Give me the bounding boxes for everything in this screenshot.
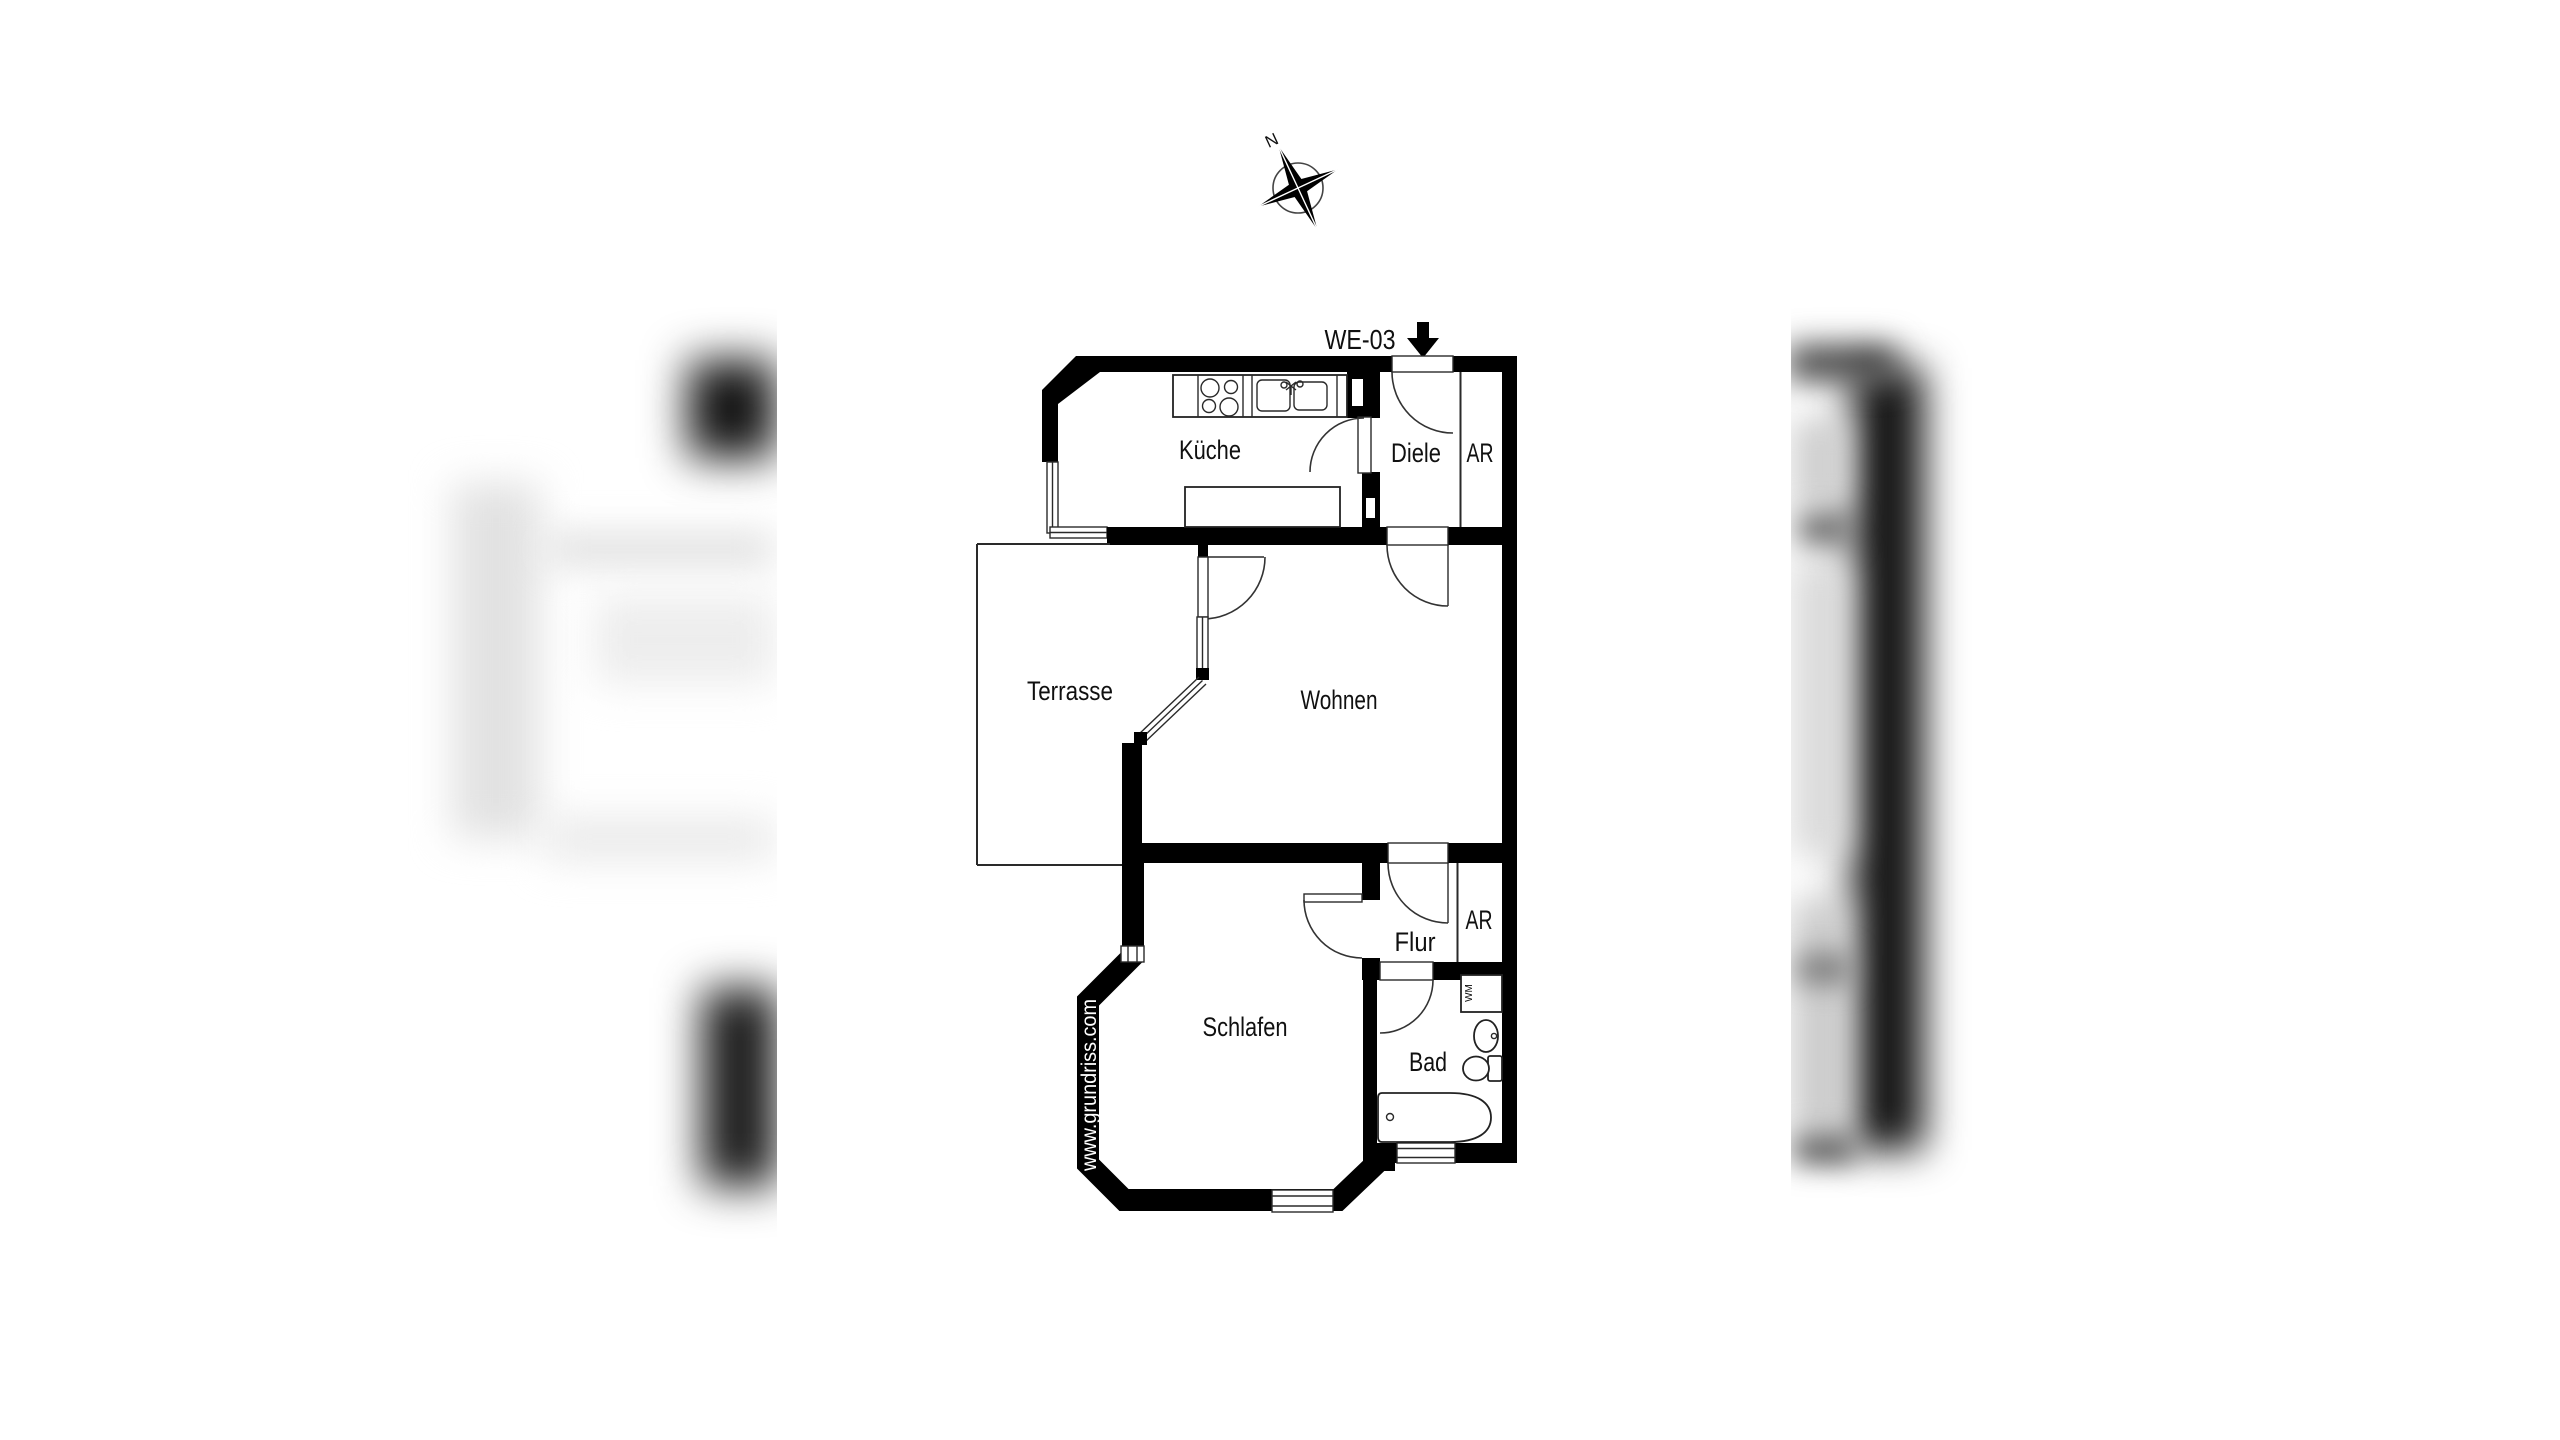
wall-kitchen-bottom bbox=[1107, 527, 1387, 545]
toilet-icon bbox=[1463, 1056, 1502, 1081]
bathroom-window bbox=[1397, 1143, 1455, 1163]
compass-north-label: N bbox=[1262, 129, 1281, 151]
wall-bad-bedroom bbox=[1363, 980, 1377, 1143]
kitchen-window-left bbox=[1047, 462, 1107, 538]
floorplan-page: N WE-03 bbox=[0, 0, 2560, 1440]
bathroom-door bbox=[1380, 962, 1433, 1033]
washing-machine-label: WM bbox=[1464, 984, 1475, 1002]
bay-window bbox=[1272, 1190, 1333, 1212]
wall-bad-bottom-right bbox=[1455, 1143, 1517, 1163]
terrace-window-vertical bbox=[1197, 617, 1208, 670]
wall-flur-bad-left bbox=[1362, 962, 1380, 980]
watermark-text: www.grundriss.com bbox=[1078, 999, 1101, 1172]
unit-label: WE-03 bbox=[1325, 324, 1396, 355]
living-room-door bbox=[1387, 527, 1448, 606]
washbasin-icon bbox=[1474, 1020, 1498, 1052]
bathtub-icon bbox=[1378, 1093, 1491, 1142]
room-label-wohnen: Wohnen bbox=[1301, 685, 1378, 715]
room-label-terrasse: Terrasse bbox=[1027, 676, 1113, 706]
room-label-flur: Flur bbox=[1395, 927, 1436, 957]
entrance-door-opening bbox=[1392, 356, 1453, 372]
terrace-door bbox=[1198, 557, 1265, 619]
entrance-door-arc bbox=[1392, 372, 1453, 433]
terrace-window-diagonal bbox=[1138, 677, 1206, 742]
room-label-diele: Diele bbox=[1391, 438, 1441, 468]
wall-living-bottom-left bbox=[1122, 843, 1388, 863]
kitchen-door bbox=[1310, 417, 1371, 473]
kitchen-counter-lower bbox=[1185, 487, 1340, 527]
floorplan-drawing: N WE-03 bbox=[0, 0, 2560, 1440]
room-label-ar-bottom: AR bbox=[1466, 905, 1493, 935]
room-label-bad: Bad bbox=[1409, 1047, 1447, 1077]
room-label-schlafen: Schlafen bbox=[1203, 1012, 1288, 1042]
room-label-ar-top: AR bbox=[1467, 438, 1494, 468]
room-label-kueche: Küche bbox=[1179, 435, 1241, 465]
wall-bedroom-corner-patch bbox=[1363, 1143, 1395, 1171]
entrance-arrow-icon bbox=[1407, 322, 1439, 358]
hallway-door bbox=[1388, 843, 1448, 923]
wall-flur-bedroom-top bbox=[1362, 863, 1380, 900]
washing-machine-niche: WM bbox=[1461, 975, 1502, 1012]
wall-living-bottom-right bbox=[1448, 843, 1502, 863]
compass-icon: N bbox=[1258, 129, 1338, 229]
wall-hall-bottom-right bbox=[1448, 527, 1517, 545]
terrace-door-jamb bbox=[1198, 545, 1208, 557]
bedroom-door bbox=[1304, 894, 1362, 958]
bedroom-window-upper bbox=[1121, 946, 1144, 962]
wall-right-outer bbox=[1502, 356, 1517, 1163]
